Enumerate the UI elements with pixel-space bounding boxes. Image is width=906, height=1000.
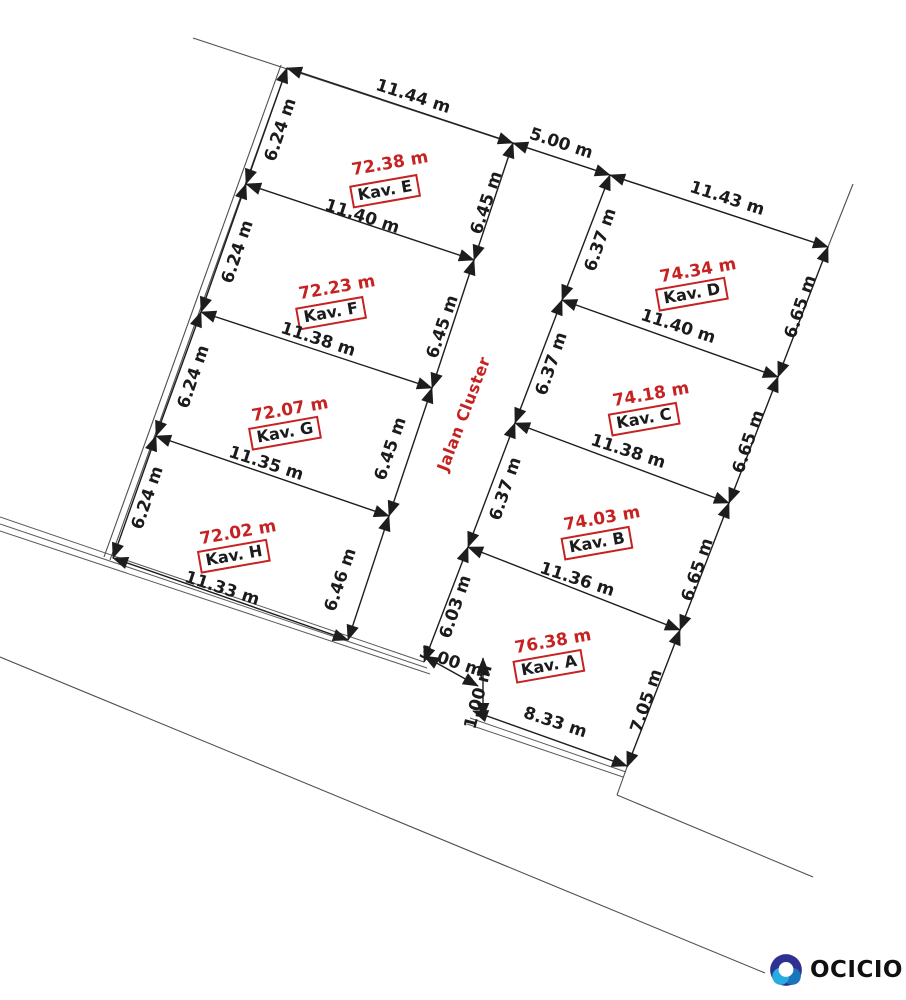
ocicio-logo-icon (768, 952, 804, 988)
ocicio-logo-text: OCICIO (810, 957, 903, 983)
ocicio-logo: OCICIO (768, 952, 903, 988)
boundary-lines (0, 38, 853, 973)
site-plan: 11.44 m 6.24 m 6.45 m 72.38 m Kav. E 11.… (0, 0, 906, 1000)
